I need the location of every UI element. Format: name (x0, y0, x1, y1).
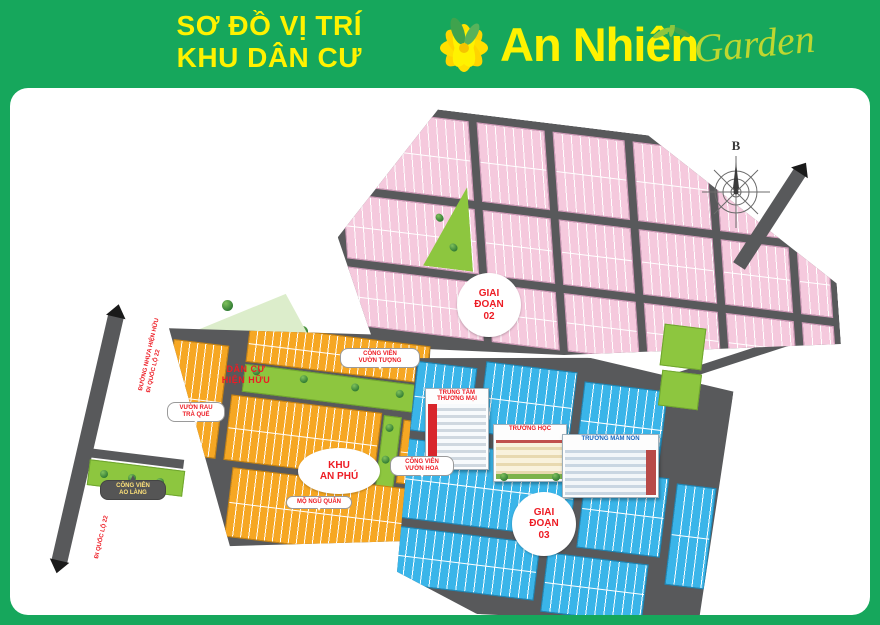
bubble-line: VƯỜN RAU (179, 405, 212, 411)
flower-icon (428, 4, 500, 84)
lot-block (797, 249, 834, 318)
lot-block (559, 219, 636, 293)
bubble-line: TRÀ QUẾ (183, 412, 210, 418)
lot-block (160, 339, 229, 459)
bubble-line: AO LÀNG (119, 490, 147, 496)
kindergarten-building: TRƯỜNG MẦM NON (562, 434, 659, 498)
lot-block (564, 293, 640, 360)
shrine-bubble: MỘ NGŨ QUÂN (286, 496, 352, 509)
vegetable-garden-bubble: VƯỜN RAU TRÀ QUẾ (167, 402, 225, 422)
lot-block (802, 322, 838, 384)
bamboo-leaves-icon (650, 25, 694, 51)
bubble-line: CÔNG VIÊN (363, 351, 397, 357)
badge-line: 02 (483, 311, 494, 322)
kindergarten-label-line: MẦM NON (610, 436, 639, 442)
school-building: TRƯỜNG HỌC (493, 424, 567, 482)
tree-icon (222, 300, 233, 311)
tree-icon (100, 470, 108, 478)
mall-label-line: THƯƠNG MẠI (437, 396, 477, 402)
green-park-block (658, 370, 702, 411)
badge-line: GIAI (479, 288, 500, 299)
access-road-west (52, 314, 124, 563)
green-park-block (660, 324, 707, 371)
compass-rose: B (698, 136, 774, 232)
badge-line: AN PHÚ (320, 471, 358, 483)
title-line-1: SƠ ĐỒ VỊ TRÍ (118, 10, 362, 42)
lot-block (553, 132, 631, 221)
bubble-line: CÔNG VIÊN (116, 483, 150, 489)
badge-line: KHU (328, 460, 350, 472)
bubble-line: CÔNG VIÊN (405, 459, 439, 465)
tree-icon (500, 473, 508, 481)
an-phu-badge: KHU AN PHÚ (298, 448, 380, 494)
road-label-west-bottom: ĐI QUỐC LỘ 22 (94, 515, 111, 560)
area-label-line: HIỆN HỮU (222, 375, 270, 385)
village-pond-bubble: CÔNG VIÊN AO LÀNG (100, 480, 166, 500)
lot-block (337, 105, 475, 201)
area-label-line: DÂN CƯ (227, 364, 266, 374)
compass-north-label: B (732, 138, 741, 153)
phase2-badge: GIAI ĐOẠN 02 (457, 273, 521, 337)
bubble-line: VƯỜN TƯỢNG (359, 358, 402, 364)
tree-icon (552, 473, 560, 481)
kindergarten-label-line: TRƯỜNG (581, 436, 608, 442)
page-title: SƠ ĐỒ VỊ TRÍ KHU DÂN CƯ (118, 10, 362, 74)
lot-block (540, 552, 649, 615)
brand-logo: An Nhiên Garden (428, 0, 815, 88)
map-canvas: ĐƯỜNG NHỰA HIỆN HỮU ĐI QUỐC LỘ 22 ĐI QUỐ… (10, 88, 870, 615)
road-label-line: ĐI QUỐC LỘ 22 (94, 515, 111, 560)
mall-label-line: TRUNG TÂM (439, 390, 475, 396)
phase3-badge: GIAI ĐOẠN 03 (512, 492, 576, 556)
lot-block (477, 122, 551, 210)
kindergarten-label: TRƯỜNG MẦM NON (563, 436, 658, 442)
school-label: TRƯỜNG HỌC (494, 426, 566, 432)
badge-line: 03 (538, 530, 549, 541)
lot-block (639, 229, 718, 304)
existing-residential-label: DÂN CƯ HIỆN HỮU (198, 364, 294, 387)
kindergarten-facade (565, 450, 656, 495)
title-line-2: KHU DÂN CƯ (118, 42, 362, 74)
site-plan-poster: SƠ ĐỒ VỊ TRÍ KHU DÂN CƯ (0, 0, 880, 625)
brand-suffix: Garden (693, 19, 817, 69)
statue-garden-bubble: CÔNG VIÊN VƯỜN TƯỢNG (340, 348, 420, 368)
badge-line: GIAI (534, 507, 555, 518)
badge-line: ĐOẠN (474, 299, 503, 310)
mall-label: TRUNG TÂM THƯƠNG MẠI (426, 390, 488, 403)
bubble-line: VƯỜN HOA (405, 466, 438, 472)
lot-block (664, 483, 716, 589)
flower-garden-bubble: CÔNG VIÊN VƯỜN HOA (390, 456, 454, 476)
badge-line: ĐOẠN (529, 518, 558, 529)
